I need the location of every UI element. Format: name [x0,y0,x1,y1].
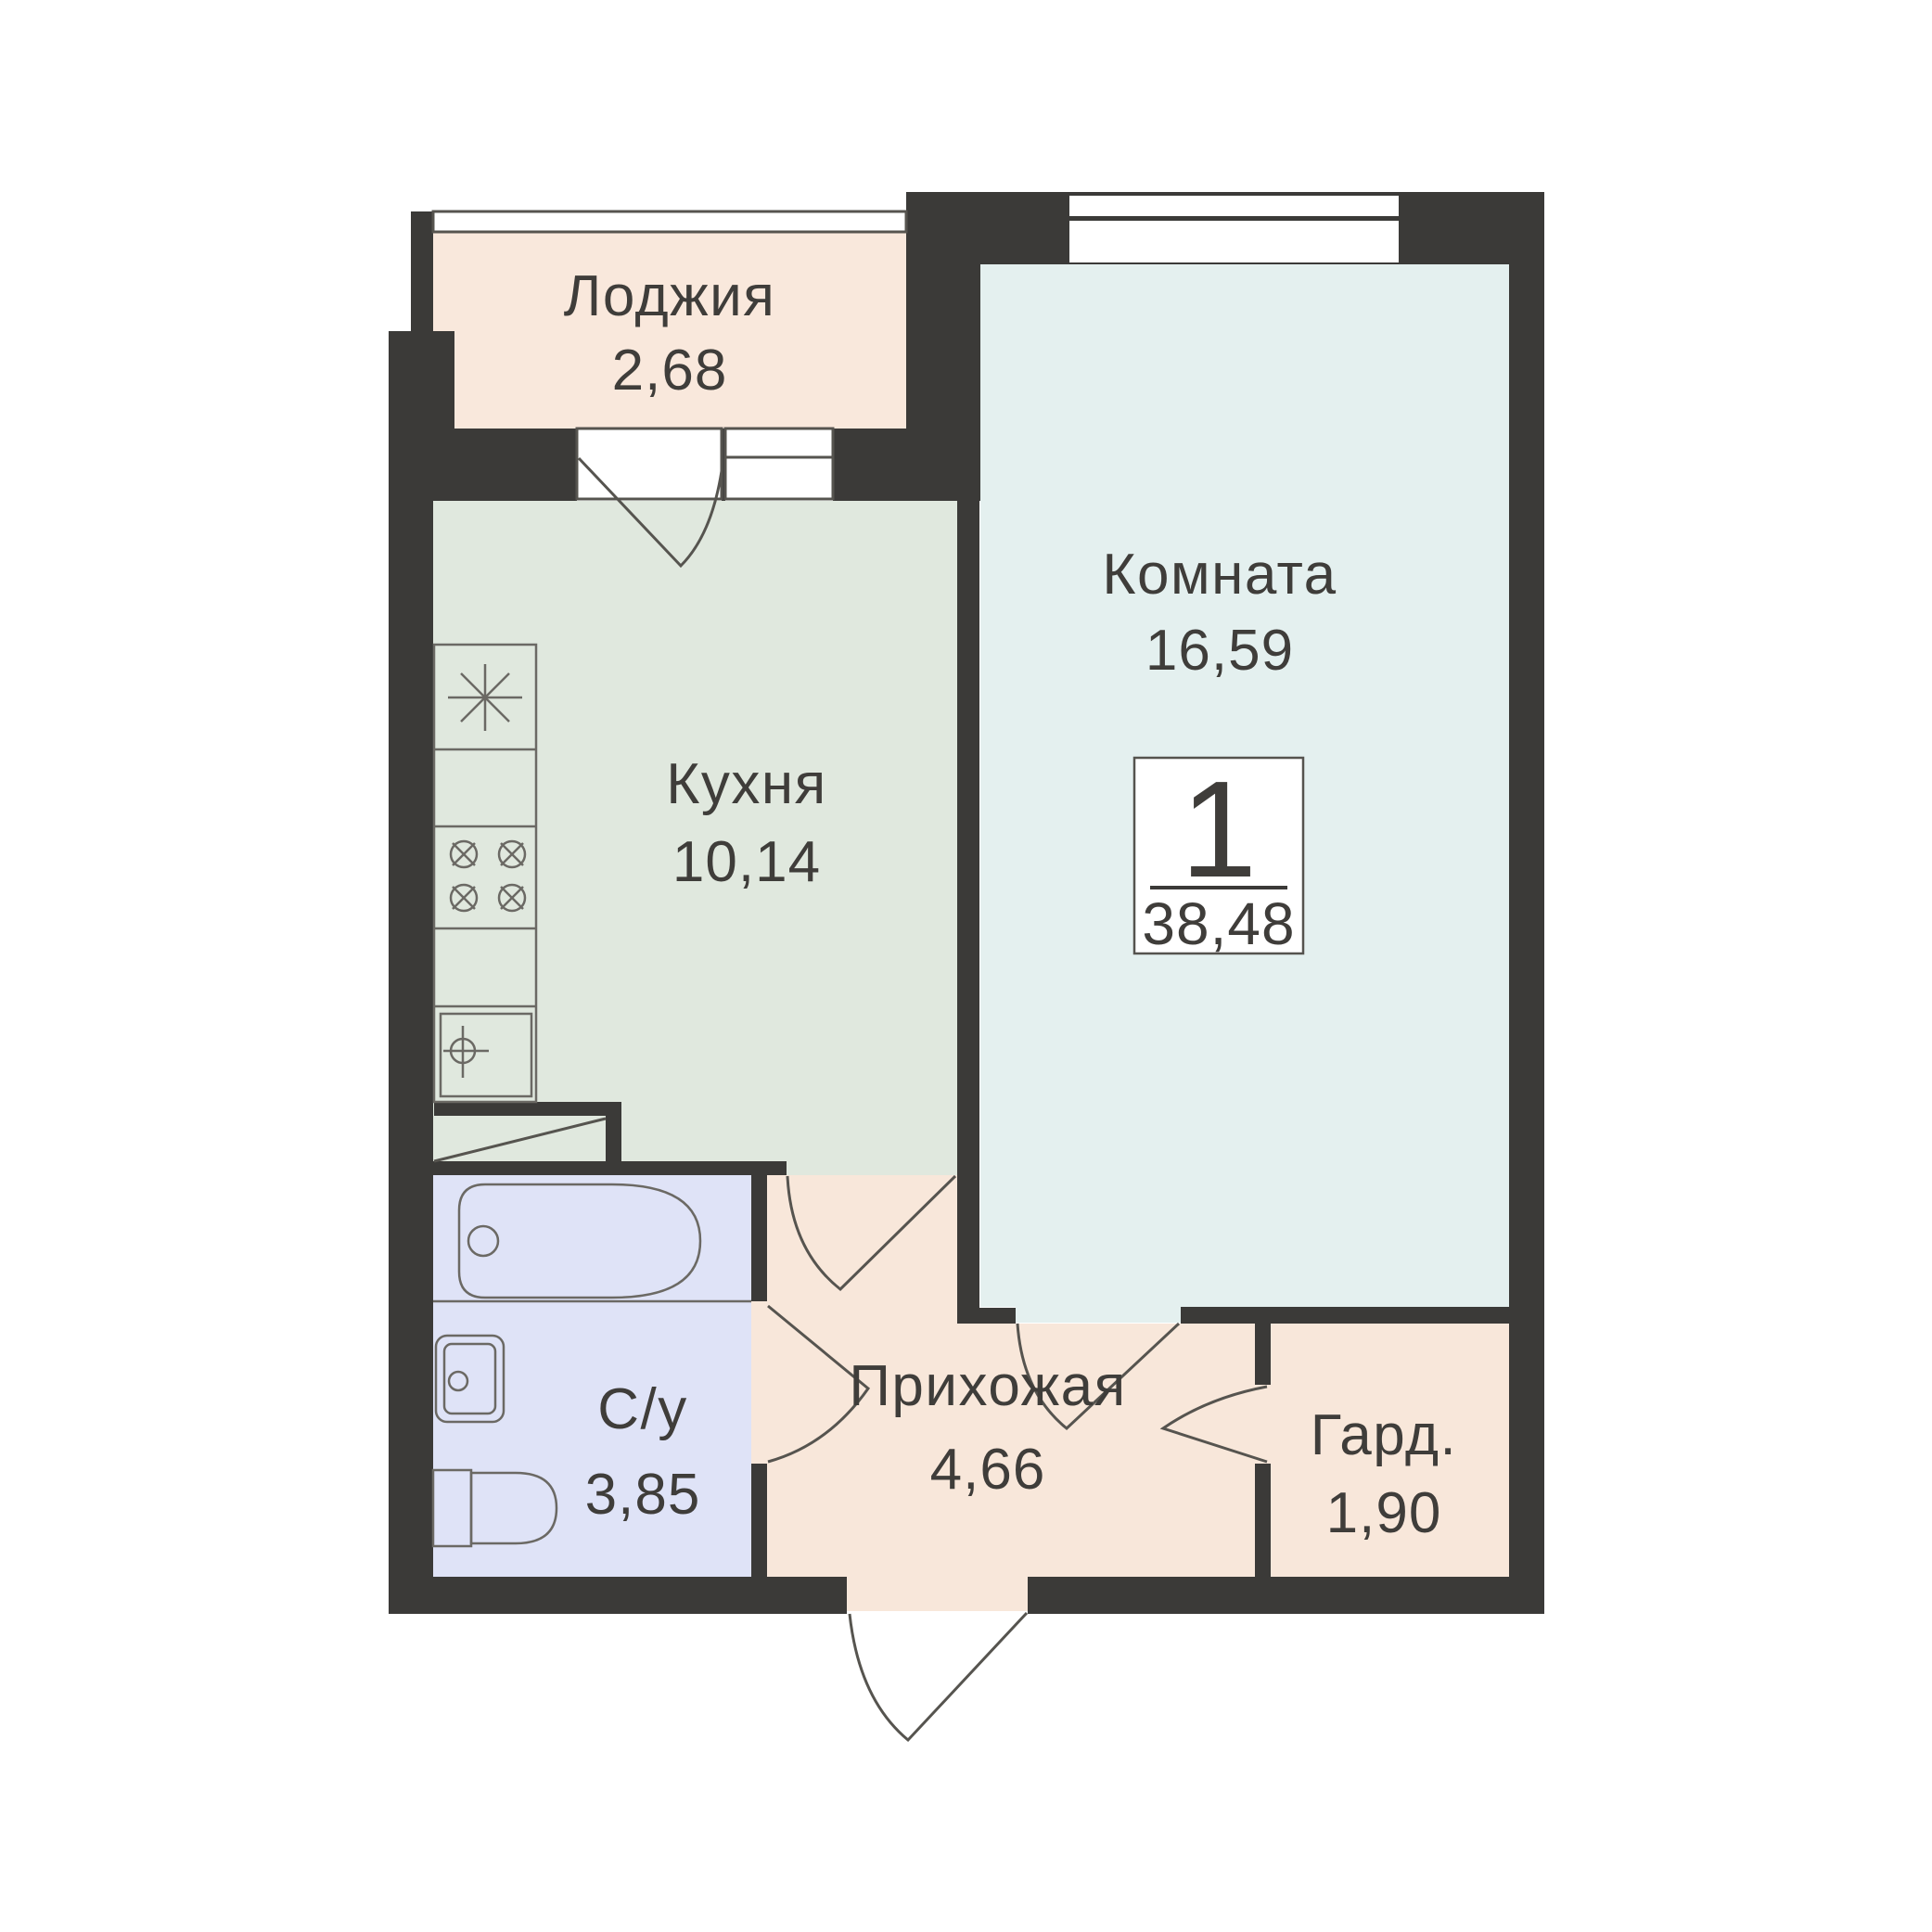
floorplan-drawing: Лоджия 2,68 Комната 16,59 Кухня 10,14 С/… [0,0,1932,1932]
room-area-kitchen: 10,14 [672,830,821,894]
door-swing-entry [850,1613,1027,1740]
floor-entry-doorway [847,1577,1028,1611]
room-area-loggia: 2,68 [612,339,728,403]
apartment-badge: 1 38,48 [1134,753,1303,957]
floor-bathroom-doorway [751,1301,767,1464]
room-area-hallway: 4,66 [930,1438,1046,1502]
wall-loggia-bottom-left [433,429,577,501]
wall-loggia-bottom-right [833,429,906,501]
badge-rooms-count: 1 [1181,753,1257,906]
wall-wardrobe-left-upper [1255,1320,1271,1385]
wall-loggia-room-block [906,192,980,501]
wall-bathroom-right-lower [751,1464,767,1579]
wall-kitchen-nook [434,1102,621,1116]
wall-left-outer [389,501,433,1614]
wall-bathroom-right-upper [751,1175,767,1301]
badge-total-area: 38,48 [1142,890,1295,957]
wall-wardrobe-left-lower [1255,1464,1271,1579]
wall-bottom-right [1028,1577,1544,1614]
room-label-kitchen: Кухня [666,752,826,816]
loggia-glazing [433,211,906,232]
wall-loggia-left [411,211,433,331]
room-label-hallway: Прихожая [849,1354,1126,1418]
wall-bottom-left [389,1577,847,1614]
floor-wardrobe-doorway [1255,1385,1271,1464]
wall-room-bottom [1181,1307,1544,1324]
wall-kitchen-room-divider [957,501,979,1324]
room-area-wardrobe: 1,90 [1326,1481,1442,1545]
living-room-window-divider [1069,216,1399,221]
floor-living-room-threshold [1016,1307,1181,1323]
wall-right-outer [1509,192,1544,1614]
room-label-living: Комната [1102,543,1337,607]
room-label-wardrobe: Гард. [1311,1403,1458,1467]
room-label-bathroom: С/у [597,1377,688,1441]
balcony-window [725,429,833,499]
wall-bathroom-top [389,1161,787,1175]
room-area-living: 16,59 [1145,619,1294,683]
room-area-bathroom: 3,85 [585,1463,701,1527]
balcony-door [577,429,722,499]
wall-room-door-left [957,1308,1016,1324]
wall-kitchen-nook-stub [606,1102,621,1161]
floorplan: Лоджия 2,68 Комната 16,59 Кухня 10,14 С/… [0,0,1932,1932]
room-label-loggia: Лоджия [564,264,776,328]
living-room-window [1069,196,1399,262]
